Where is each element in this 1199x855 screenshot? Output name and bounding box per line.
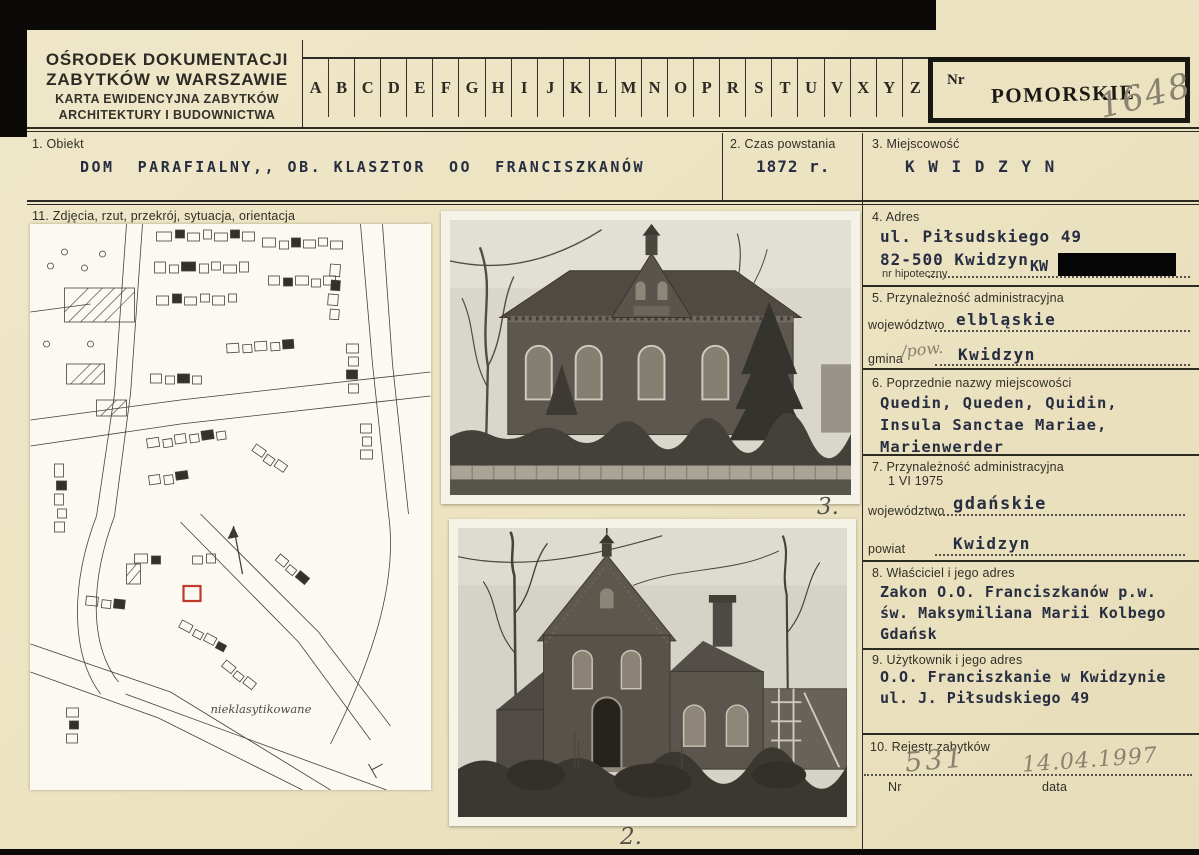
alphabet-letter: G	[459, 59, 485, 117]
field4-street: ul. Piłsudskiego 49	[880, 227, 1082, 246]
mortgage-number-label: nr hipoteczny	[882, 268, 947, 280]
register-nr-label: Nr	[888, 780, 902, 794]
handwritten-pow: /pow.	[900, 338, 944, 361]
alphabet-letter: N	[642, 59, 668, 117]
photos-section-label: 11. Zdjęcia, rzut, przekrój, sytuacja, o…	[32, 209, 295, 223]
field5-label: 5. Przynależność administracyjna	[872, 291, 1064, 305]
dotted-line	[928, 276, 1190, 278]
alphabet-letter: M	[616, 59, 642, 117]
alphabet-letter: Z	[903, 59, 928, 117]
field2-value: 1872 r.	[756, 157, 830, 176]
photo-garden-elevation	[449, 519, 856, 826]
alphabet-letter: S	[746, 59, 772, 117]
user-line: O.O. Franciszkanie w Kwidzynie	[880, 668, 1166, 686]
alphabet-letter: X	[851, 59, 877, 117]
alphabet-letter: H	[486, 59, 512, 117]
field4-label: 4. Adres	[872, 210, 919, 224]
alphabet-letter: I	[512, 59, 538, 117]
alphabet-letter: D	[381, 59, 407, 117]
alphabet-letter: E	[407, 59, 433, 117]
road	[450, 479, 851, 495]
scan-edge	[0, 0, 27, 137]
photo2-image	[458, 528, 847, 817]
gmina-value: Kwidzyn	[958, 345, 1036, 364]
scan-edge	[0, 849, 1199, 855]
owner-line: Gdańsk	[880, 625, 937, 643]
scan-edge	[0, 0, 936, 30]
dotted-line	[935, 554, 1185, 556]
register-date-handwritten: 14.04.1997	[1021, 743, 1158, 777]
voivodeship-value: elbląskie	[956, 310, 1056, 329]
powiat-value: Kwidzyn	[953, 534, 1031, 553]
nr-label: Nr	[947, 72, 965, 89]
former-name-line: Insula Sanctae Mariae,	[880, 416, 1107, 434]
alphabet-letter: O	[668, 59, 694, 117]
divider	[862, 368, 1199, 370]
card-type-line1: KARTA EWIDENCYJNA ZABYTKÓW	[36, 92, 298, 108]
alphabet-letter: J	[538, 59, 564, 117]
divider	[27, 200, 1199, 202]
divider	[722, 133, 723, 201]
voivodeship-1975-label: województwo	[868, 504, 945, 518]
alphabet-letter: L	[590, 59, 616, 117]
field4-postal-city: 82-500 Kwidzyn	[880, 250, 1029, 269]
dotted-line	[935, 514, 1185, 516]
divider	[27, 204, 1199, 205]
photo2-caption: 2.	[620, 824, 642, 850]
alphabet-letter: C	[355, 59, 381, 117]
record-card-scan: OŚRODEK DOKUMENTACJI ZABYTKÓW w WARSZAWI…	[0, 0, 1199, 855]
alphabet-letter: R	[720, 59, 746, 117]
dotted-line	[935, 364, 1190, 366]
background-building	[821, 364, 851, 432]
divider	[27, 127, 1199, 129]
alphabet-letter: T	[772, 59, 798, 117]
voivodeship-1975-value: gdańskie	[953, 494, 1047, 514]
mortgage-register-prefix: KW	[1030, 257, 1048, 275]
divider	[862, 648, 1199, 650]
gmina-label: gmina	[868, 352, 903, 366]
alphabet-letter: V	[825, 59, 851, 117]
alphabet-letter: Y	[877, 59, 903, 117]
user-line: ul. J. Piłsudskiego 49	[880, 689, 1090, 707]
organization-name-line1: OŚRODEK DOKUMENTACJI	[36, 50, 298, 70]
photo1-image	[450, 220, 851, 495]
field3-value: K W I D Z Y N	[905, 157, 1056, 176]
photo1-caption: 3.	[817, 494, 839, 520]
card-type-line2: ARCHITEKTURY I BUDOWNICTWA	[36, 108, 298, 124]
card-type-title: KARTA EWIDENCYJNA ZABYTKÓW ARCHITEKTURY …	[36, 92, 298, 123]
organization-name: OŚRODEK DOKUMENTACJI ZABYTKÓW w WARSZAWI…	[36, 50, 298, 90]
dotted-line	[864, 774, 1192, 776]
alphabet-letter: P	[694, 59, 720, 117]
alphabet-letter: F	[433, 59, 459, 117]
divider	[862, 133, 863, 849]
owner-line: św. Maksymiliana Marii Kolbego	[880, 604, 1166, 622]
dotted-line	[935, 330, 1190, 332]
field6-label: 6. Poprzednie nazwy miejscowości	[872, 376, 1072, 390]
field1-label: 1. Obiekt	[32, 137, 84, 151]
alphabet-letter: U	[798, 59, 824, 117]
field3-label: 3. Miejscowość	[872, 137, 960, 151]
photo-front-elevation	[441, 211, 860, 504]
divider	[862, 733, 1199, 735]
north-arrow	[228, 526, 243, 574]
alphabet-index-strip: A B C D E F G H I J K L M N O P R S T U …	[303, 57, 928, 117]
register-date-label: data	[1042, 780, 1067, 794]
powiat-label: powiat	[868, 542, 905, 556]
redaction-box	[1058, 253, 1176, 276]
voivodeship-label: województwo	[868, 318, 945, 332]
alphabet-letter: B	[329, 59, 355, 117]
field7-date-label: 1 VI 1975	[888, 474, 943, 488]
owner-line: Zakon O.O. Franciszkanów p.w.	[880, 583, 1156, 601]
sidewalk	[450, 466, 851, 480]
divider	[862, 285, 1199, 287]
highlighted-plot-marker	[184, 586, 201, 601]
field2-label: 2. Czas powstania	[730, 137, 836, 151]
alphabet-letter: K	[564, 59, 590, 117]
field1-value: DOM PARAFIALNY,, OB. KLASZTOR OO FRANCIS…	[80, 158, 645, 176]
divider	[302, 40, 303, 128]
former-name-line: Quedin, Queden, Quidin,	[880, 394, 1118, 412]
field8-label: 8. Właściciel i jego adres	[872, 566, 1015, 580]
field7-label: 7. Przynależność administracyjna	[872, 460, 1064, 474]
divider	[27, 131, 1199, 132]
organization-name-line2: ZABYTKÓW w WARSZAWIE	[36, 70, 298, 90]
field9-label: 9. Użytkownik i jego adres	[872, 653, 1022, 667]
divider	[862, 560, 1199, 562]
site-map-drawing: nieklasytikowane	[30, 224, 431, 790]
alphabet-letter: A	[303, 59, 329, 117]
map-note-label: nieklasytikowane	[211, 702, 312, 716]
site-map-image: nieklasytikowane	[30, 224, 431, 790]
divider	[862, 454, 1199, 456]
